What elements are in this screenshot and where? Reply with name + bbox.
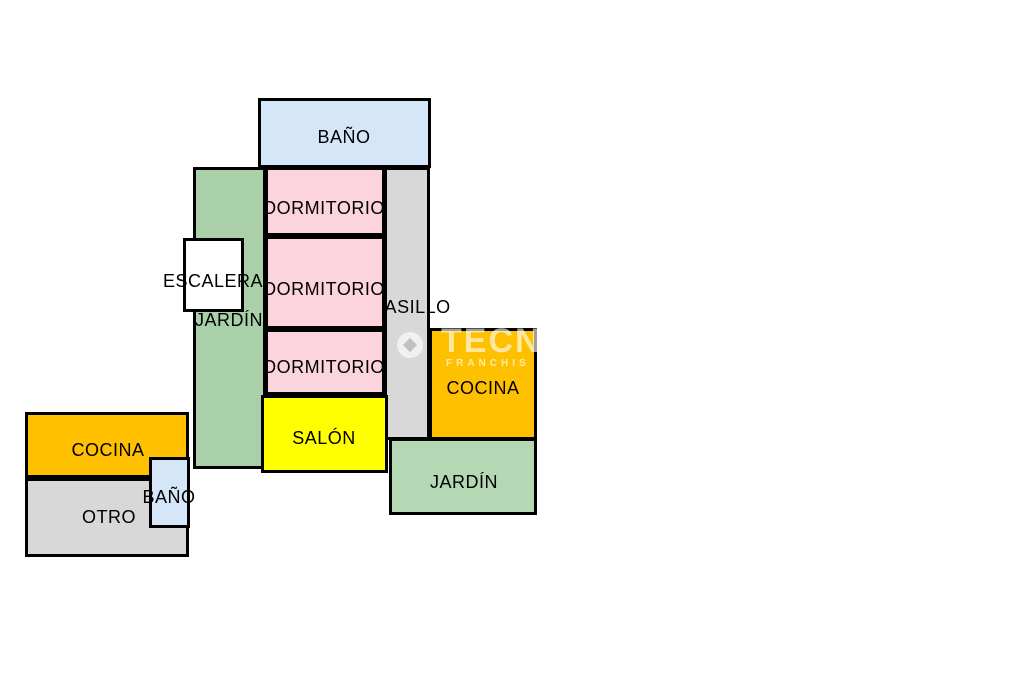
room-label-living-room: SALÓN [292,429,356,447]
floor-plan: BAÑO PASILLO DORMITORIO DORMITORIO DORMI… [0,0,1024,682]
room-label-kitchen-left: COCINA [71,441,144,459]
room-label-garden-left: JARDÍN [195,311,263,329]
room-label-stairs: ESCALERA [163,272,263,290]
room-label-bedroom-3: DORMITORIO [263,358,385,376]
room-label-bedroom-1: DORMITORIO [263,199,385,217]
room-label-other: OTRO [82,508,136,526]
room-label-bedroom-2: DORMITORIO [263,280,385,298]
room-label-bath-top: BAÑO [317,128,370,146]
room-label-bath-small: BAÑO [142,488,195,506]
room-label-garden-right: JARDÍN [430,473,498,491]
room-label-kitchen-right: COCINA [446,379,519,397]
